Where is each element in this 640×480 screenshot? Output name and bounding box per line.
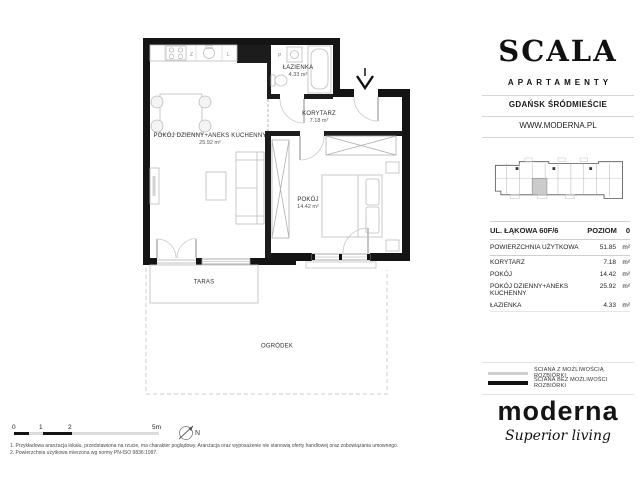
scale-bar-segments: [14, 432, 159, 435]
floorplan-drawing: Z L P: [0, 0, 480, 480]
footnote-2: 2. Powierzchnia użytkowa mierzona wg nor…: [10, 450, 470, 457]
dining-table: [151, 94, 211, 134]
room-label-bathroom: ŁAZIENKA 4.33 m²: [283, 65, 314, 79]
total-area-label: POWIERZCHNIA UŻYTKOWA: [490, 244, 600, 251]
exterior-walls: [143, 38, 410, 265]
legend-swatch-solid-wall: [488, 381, 528, 385]
divider: [482, 95, 634, 96]
divider: [482, 116, 634, 117]
entrance-arrow-icon: [357, 68, 373, 88]
total-area-value: 51.85: [600, 244, 616, 251]
table-row: POKÓJ DZIENNY+ANEKS KUCHENNY 25.92 m²: [490, 280, 630, 299]
garden-boundary: [146, 268, 387, 394]
table-row: KORYTARZ 7.18 m²: [490, 256, 630, 268]
room-label-living: POKÓJ DZIENNY+ANEKS KUCHENNY 25.92 m²: [153, 133, 266, 147]
scale-tick-2: 2: [68, 424, 72, 431]
table-header-row: UL. ŁĄKOWA 60F/6 POZIOM 0: [490, 222, 630, 239]
scale-tick-1: 1: [39, 424, 43, 431]
unit-address: UL. ŁĄKOWA 60F/6: [490, 226, 587, 235]
level-value: 0: [626, 226, 630, 235]
area-unit: m²: [616, 244, 630, 251]
scale-bar: 0 1 2 5m: [14, 424, 160, 438]
mark-z: Z: [190, 52, 193, 58]
location-label: GDAŃSK ŚRÓDMIEŚCIE: [482, 100, 634, 109]
website-label: WWW.MODERNA.PL: [482, 121, 634, 130]
footnotes: 1. Przykładowa aranżacja lokalu, przedst…: [10, 443, 470, 456]
legend-swatch-light-wall: [488, 372, 528, 375]
developer-tagline: Superior living: [482, 428, 634, 444]
north-arrow-icon: N: [176, 423, 206, 443]
coffee-table: [206, 172, 226, 200]
unit-area-table: UL. ŁĄKOWA 60F/6 POZIOM 0 POWIERZCHNIA U…: [490, 221, 630, 312]
room-label-terrace: TARAS: [194, 280, 215, 287]
room-label-bedroom: POKÓJ 14.42 m²: [297, 197, 319, 211]
floorplan-page: Z L P POKÓJ DZIENNY+ANEKS KUCHENNY 25.92…: [0, 0, 640, 480]
brand-logo-subtitle: APARTAMENTY: [482, 78, 634, 87]
mark-p: P: [278, 53, 282, 59]
wall-legend: ŚCIANA Z MOŻLIWOŚCIĄ ROZBIÓRKI ŚCIANA BE…: [482, 362, 634, 395]
interior-walls: [237, 45, 402, 258]
total-area-row: POWIERZCHNIA UŻYTKOWA 51.85 m²: [490, 240, 630, 255]
brand-logo: SCALA: [482, 34, 634, 68]
info-panel: SCALA APARTAMENTY GDAŃSK ŚRÓDMIEŚCIE WWW…: [482, 0, 634, 480]
developer-logo: moderna: [482, 396, 634, 427]
table-row: POKÓJ 14.42 m²: [490, 268, 630, 280]
keyplan-highlighted-unit: [532, 178, 547, 195]
building-keyplan: [488, 146, 628, 216]
furniture: [150, 45, 399, 251]
level-label: POZIOM: [587, 226, 617, 235]
table-row: ŁAZIENKA 4.33 m²: [490, 299, 630, 311]
bed: [322, 162, 399, 251]
mark-l: L: [227, 52, 230, 58]
sofa: [236, 152, 264, 224]
scale-tick-5m: 5m: [152, 424, 161, 431]
outdoor-areas: [146, 265, 387, 394]
north-label: N: [195, 430, 200, 437]
kitchen-counter: [150, 45, 237, 61]
room-label-corridor: KORYTARZ 7.18 m²: [302, 111, 336, 125]
table-rule: [490, 311, 630, 312]
divider: [482, 137, 634, 138]
wardrobe: [272, 136, 396, 238]
room-label-garden: OGRÓDEK: [261, 344, 293, 351]
scale-tick-0: 0: [12, 424, 16, 431]
legend-item: ŚCIANA BEZ MOŻLIWOŚCI ROZBIÓRKI: [488, 378, 630, 388]
